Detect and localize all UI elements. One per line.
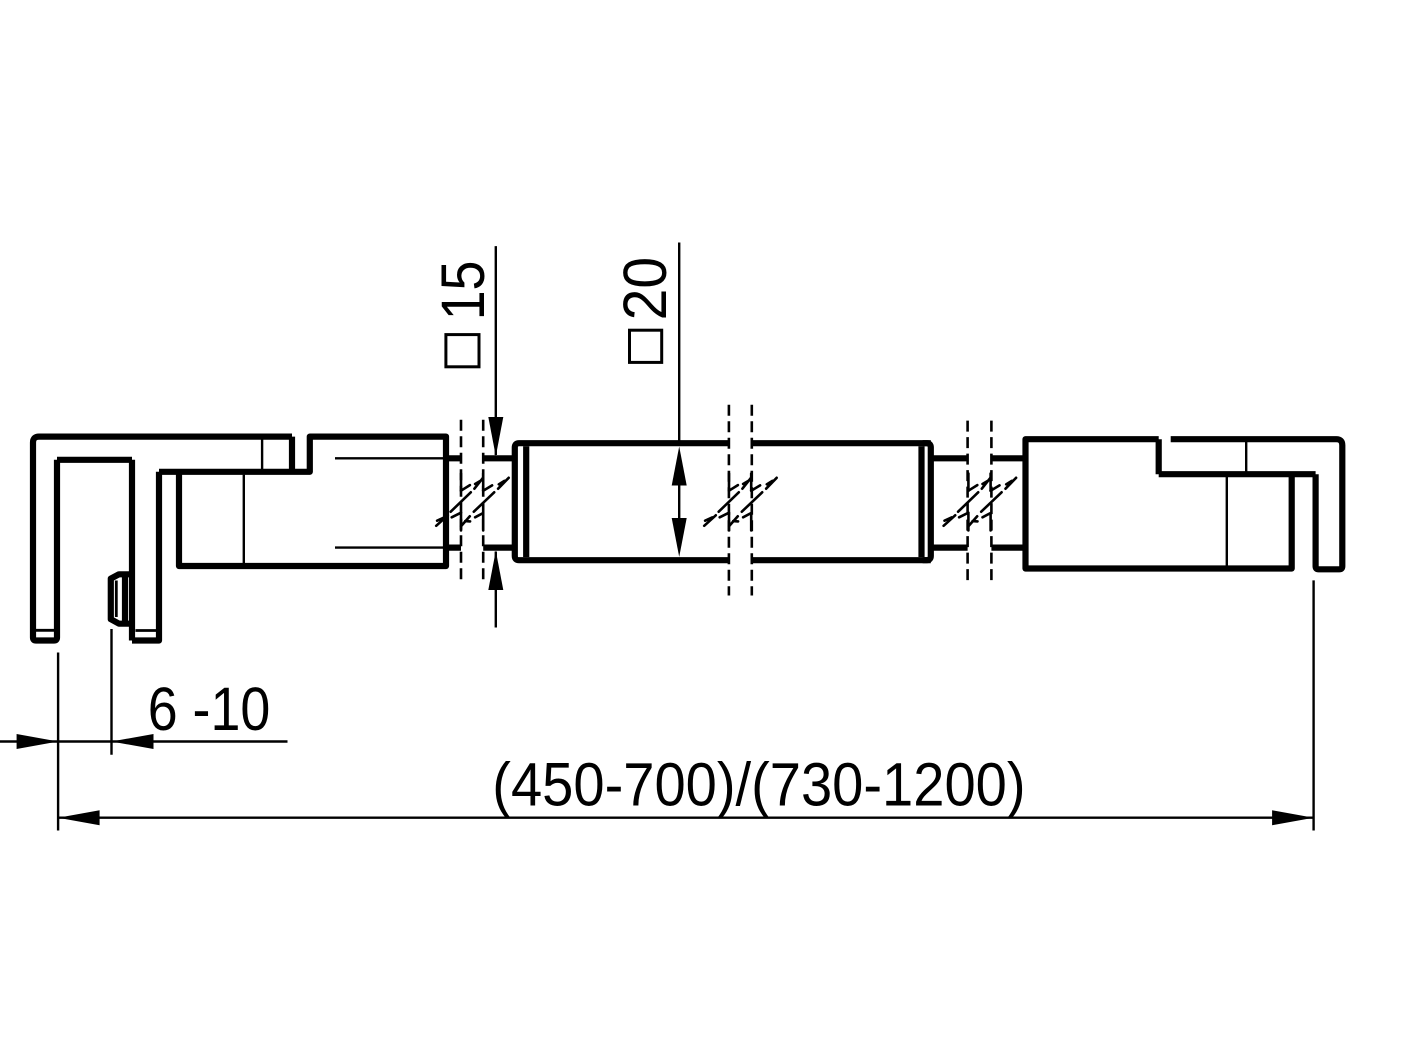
svg-text:6 -10: 6 -10 (148, 676, 271, 744)
svg-text:(450-700)/(730-1200): (450-700)/(730-1200) (492, 751, 1025, 819)
svg-text:15: 15 (430, 261, 498, 321)
svg-text:20: 20 (611, 257, 679, 321)
